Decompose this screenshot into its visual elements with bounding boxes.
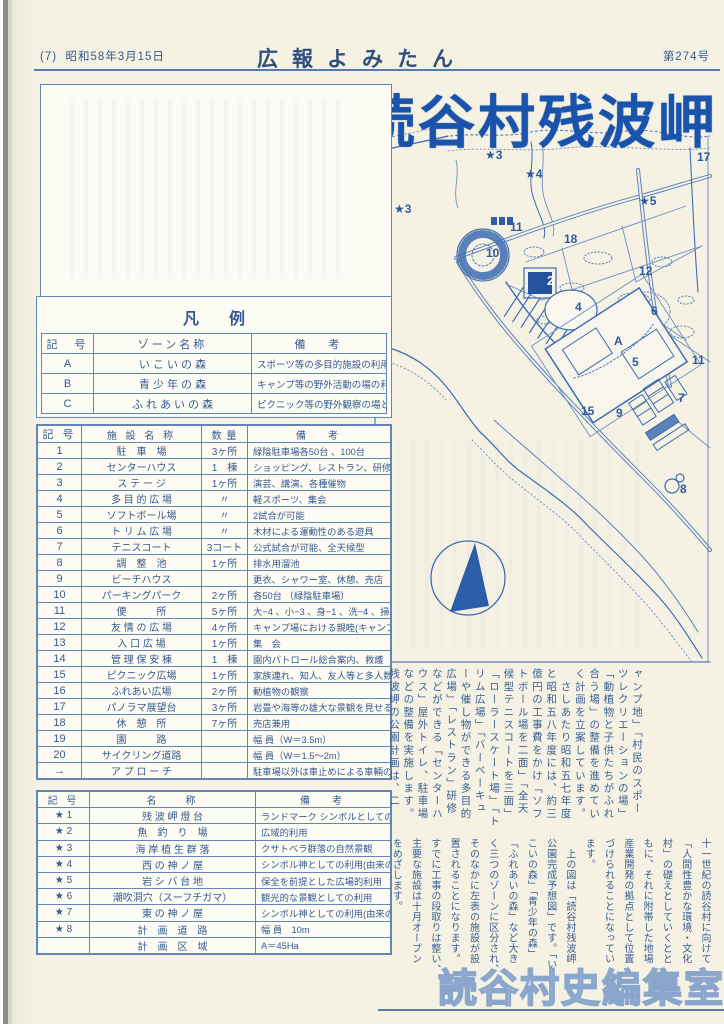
landmark-sign: ★ 3 xyxy=(38,840,90,856)
landmark-note: シンボル神としての利用(由来の銘記) xyxy=(256,856,391,872)
facility-qty xyxy=(202,747,248,763)
facility-row: 10 パーキングパーク 2ヶ所 各50台 （緑陰駐車場） xyxy=(38,587,391,603)
facility-row: 2 センターハウス 1 棟 ショッピング、レストラン、研修等 xyxy=(38,459,391,475)
page-number-and-date: (7) 昭和58年3月15日 xyxy=(40,48,165,64)
zone-row: B 青 少 年 の 森 キャンプ等の野外活動の場の利用 xyxy=(42,374,387,394)
landmark-note: A＝45Ha xyxy=(256,937,391,953)
zone-col-sign: 記 号 xyxy=(42,334,94,354)
facility-row: 11 便 所 5ヶ所 大−4 、小−3 、身−1 、洗−4 、掃−1 xyxy=(38,603,391,619)
facility-note: 排水用溜池 xyxy=(248,555,391,571)
facility-sign: 10 xyxy=(38,587,82,603)
map-label: 6 xyxy=(651,304,658,318)
facility-name: ビーチハウス xyxy=(82,571,202,587)
landmark-row: ★ 8 計 画 道 路 幅 員 10m xyxy=(38,921,391,937)
landmark-row: ★ 1 残 波 岬 燈 台 ランドマーク シンボルとしての利用 xyxy=(38,808,391,824)
facility-row: 18 休 憩 所 7ヶ所 売店兼用 xyxy=(38,715,391,731)
facility-col-sign: 記 号 xyxy=(38,426,82,443)
facility-name: ふれあい広場 xyxy=(82,683,202,699)
zone-sign: B xyxy=(42,374,94,394)
facility-note: 2試合が可能 xyxy=(248,507,391,523)
facility-qty: 2ヶ所 xyxy=(202,683,248,699)
zone-row: C ふ れ あ い の 森 ピクニック等の野外観察の場としての利用 xyxy=(42,394,387,414)
zone-note: キャンプ等の野外活動の場の利用 xyxy=(252,374,387,394)
facility-note: 軽スポーツ、集会 xyxy=(248,491,391,507)
facility-name: パノラマ展望台 xyxy=(82,699,202,715)
map-label: 12 xyxy=(639,264,652,278)
facility-name: センターハウス xyxy=(82,459,202,475)
facility-name: サイクリング道路 xyxy=(82,747,202,763)
landmark-table: 記 号 名 称 備 考 ★ 1 残 波 岬 燈 台 ランドマーク シンボルとして… xyxy=(37,791,391,954)
facility-sign: 11 xyxy=(38,603,82,619)
facility-sign: 1 xyxy=(38,443,82,459)
facility-sign: 9 xyxy=(38,571,82,587)
map-label: ★3 xyxy=(394,202,411,216)
facility-qty: 1 棟 xyxy=(202,459,248,475)
facility-sign: 7 xyxy=(38,539,82,555)
facility-col-qty: 数 量 xyxy=(202,426,248,443)
facility-sign: 6 xyxy=(38,523,82,539)
facility-row: 12 友 情 の 広 場 4ヶ所 キャンプ場における親睦(キャンプファイア等) xyxy=(38,619,391,635)
map-label: ★3 xyxy=(485,148,502,162)
facility-qty: 1ヶ所 xyxy=(202,555,248,571)
landmark-note: 広域的利用 xyxy=(256,824,391,840)
landmark-row: ★ 4 西 の 神 ノ 屋 シンボル神としての利用(由来の銘記) xyxy=(38,856,391,872)
zone-sign: A xyxy=(42,354,94,374)
facility-name: テニスコート xyxy=(82,539,202,555)
zone-col-name: ゾーン名称 xyxy=(94,334,252,354)
facility-row: 14 管 理 保 安 棟 1 棟 園内パトロール総合案内、救護 xyxy=(38,651,391,667)
landmark-sign: ★ 2 xyxy=(38,824,90,840)
facility-row: 13 入 口 広 場 1ヶ所 集 会 xyxy=(38,635,391,651)
facility-panel: 記 号 施 設 名 称 数 量 備 考 1 駐 車 場 3ヶ所 緑陰駐車場各50… xyxy=(36,424,392,780)
facility-row: 8 調 整 池 1ヶ所 排水用溜池 xyxy=(38,555,391,571)
facility-name: 管 理 保 安 棟 xyxy=(82,651,202,667)
facility-qty: 3コート xyxy=(202,539,248,555)
zone-row: A い こ い の 森 スポーツ等の多目的施設の利用 xyxy=(42,354,387,374)
editors-office-stamp: 読谷村史編集室 xyxy=(438,958,724,1014)
facility-qty xyxy=(202,763,248,779)
facility-row: → ア プ ロ ー チ 駐車場以外は車止めによる車輛の締出し xyxy=(38,763,391,779)
facility-qty: 1ヶ所 xyxy=(202,635,248,651)
facility-row: 15 ピクニック広場 1ヶ所 家族連れ、知人、友人等と多人数の利用 xyxy=(38,667,391,683)
facility-note: 駐車場以外は車止めによる車輛の締出し xyxy=(248,763,391,779)
landmark-sign: ★ 6 xyxy=(38,889,90,905)
map-label: 8 xyxy=(680,482,687,496)
bleedthrough-ghost xyxy=(71,99,351,279)
zone-name: 青 少 年 の 森 xyxy=(94,374,252,394)
facility-name: 園 路 xyxy=(82,731,202,747)
facility-note: 演芸、講演、各種催物 xyxy=(248,475,391,491)
facility-row: 4 多 目 的 広 場 〃 軽スポーツ、集会 xyxy=(38,491,391,507)
facility-note: 幅 員（W＝3.5m） xyxy=(248,731,391,747)
facility-row: 9 ビーチハウス 更衣、シャワー室、休憩、売店 xyxy=(38,571,391,587)
facility-note: 動植物の観察 xyxy=(248,683,391,699)
facility-sign: 18 xyxy=(38,715,82,731)
map-label: 7 xyxy=(678,391,685,405)
landmark-sign: ★ 4 xyxy=(38,856,90,872)
facility-qty xyxy=(202,571,248,587)
issue-number: 第274号 xyxy=(663,48,710,64)
facility-name: ソフトボール場 xyxy=(82,507,202,523)
facility-qty: 1ヶ所 xyxy=(202,667,248,683)
facility-qty: 3ヶ所 xyxy=(202,443,248,459)
landmark-row: 計 画 区 域 A＝45Ha xyxy=(38,937,391,953)
zone-col-note: 備 考 xyxy=(252,334,387,354)
landmark-name: 魚 釣 り 場 xyxy=(90,824,256,840)
facility-sign: 19 xyxy=(38,731,82,747)
landmark-row: ★ 2 魚 釣 り 場 広域的利用 xyxy=(38,824,391,840)
legend-title: 凡例 xyxy=(41,299,387,333)
issue-date: 昭和58年3月15日 xyxy=(65,51,164,63)
article-lower-tier: 十一世紀の読谷村に向けて 「人間性豊かな環境・文化 村」の礎えとしていくとと も… xyxy=(386,838,714,970)
landmark-sign: ★ 8 xyxy=(38,921,90,937)
facility-note: 緑陰駐車場各50台 、100台 xyxy=(248,443,391,459)
facility-name: 調 整 池 xyxy=(82,555,202,571)
facility-qty: 〃 xyxy=(202,523,248,539)
zone-sign: C xyxy=(42,394,94,414)
landmark-note: クサトベラ群落の自然景観 xyxy=(256,840,391,856)
map-label: 9 xyxy=(616,406,623,420)
facility-qty: 1 棟 xyxy=(202,651,248,667)
facility-note: ショッピング、レストラン、研修等 xyxy=(248,459,391,475)
facility-note: 大−4 、小−3 、身−1 、洗−4 、掃−1 xyxy=(248,603,391,619)
facility-name: 多 目 的 広 場 xyxy=(82,491,202,507)
facility-sign: 15 xyxy=(38,667,82,683)
facility-qty: 1ヶ所 xyxy=(202,475,248,491)
legend-panel: 凡例 記 号 ゾーン名称 備 考 A い こ い の 森 スポーツ等の多目的施設… xyxy=(36,296,392,418)
landmark-sign: ★ 1 xyxy=(38,808,90,824)
facility-sign: 5 xyxy=(38,507,82,523)
bleedthrough-ghost-map xyxy=(398,440,648,650)
facility-row: 1 駐 車 場 3ヶ所 緑陰駐車場各50台 、100台 xyxy=(38,443,391,459)
facility-sign: 3 xyxy=(38,475,82,491)
facility-col-note: 備 考 xyxy=(248,426,391,443)
page-title: 読谷村残波岬 xyxy=(358,77,718,159)
landmark-sign: ★ 7 xyxy=(38,905,90,921)
facility-sign: 8 xyxy=(38,555,82,571)
facility-qty: 7ヶ所 xyxy=(202,715,248,731)
landmark-sign xyxy=(38,937,90,953)
map-label: 18 xyxy=(564,232,577,246)
facility-qty: 5ヶ所 xyxy=(202,603,248,619)
facility-row: 6 ト リ ム 広 場 〃 木材による運動性のある遊具 xyxy=(38,523,391,539)
facility-sign: 13 xyxy=(38,635,82,651)
landmark-name: 潮吹洞穴（スーフチガマ） xyxy=(90,889,256,905)
facility-qty xyxy=(202,731,248,747)
map-label: 11 xyxy=(692,353,705,367)
facility-note: 木材による運動性のある遊具 xyxy=(248,523,391,539)
zone-name: ふ れ あ い の 森 xyxy=(94,394,252,414)
map-label: 5 xyxy=(632,355,639,369)
facility-sign: 16 xyxy=(38,683,82,699)
map-label: 11 xyxy=(510,220,523,234)
landmark-name: 岩 シ バ 台 地 xyxy=(90,872,256,888)
facility-sign: 20 xyxy=(38,747,82,763)
zone-table: 記 号 ゾーン名称 備 考 A い こ い の 森 スポーツ等の多目的施設の利用… xyxy=(41,333,387,414)
facility-name: ア プ ロ ー チ xyxy=(82,763,202,779)
facility-sign: 2 xyxy=(38,459,82,475)
facility-name: 休 憩 所 xyxy=(82,715,202,731)
landmark-panel: 記 号 名 称 備 考 ★ 1 残 波 岬 燈 台 ランドマーク シンボルとして… xyxy=(36,790,392,955)
facility-note: 家族連れ、知人、友人等と多人数の利用 xyxy=(248,667,391,683)
map-label: ★4 xyxy=(525,167,542,181)
landmark-col-name: 名 称 xyxy=(90,792,256,808)
landmark-col-note: 備 考 xyxy=(256,792,391,808)
facility-row: 5 ソフトボール場 〃 2試合が可能 xyxy=(38,507,391,523)
facility-note: 岩畳や海等の雄大な景観を見せる xyxy=(248,699,391,715)
landmark-row: ★ 6 潮吹洞穴（スーフチガマ） 観光的な景観としての利用 xyxy=(38,889,391,905)
landmark-row: ★ 3 海 岸 植 生 群 落 クサトベラ群落の自然景観 xyxy=(38,840,391,856)
landmark-name: 西 の 神 ノ 屋 xyxy=(90,856,256,872)
map-label: 15 xyxy=(581,404,594,418)
facility-sign: 4 xyxy=(38,491,82,507)
facility-note: 更衣、シャワー室、休憩、売店 xyxy=(248,571,391,587)
facility-name: ス テ ー ジ xyxy=(82,475,202,491)
map-label: 4 xyxy=(575,300,582,314)
map-label: ★5 xyxy=(639,194,656,208)
facility-row: 3 ス テ ー ジ 1ヶ所 演芸、講演、各種催物 xyxy=(38,475,391,491)
facility-sign: → xyxy=(38,763,82,779)
facility-row: 19 園 路 幅 員（W＝3.5m） xyxy=(38,731,391,747)
landmark-note: 幅 員 10m xyxy=(256,921,391,937)
facility-name: 友 情 の 広 場 xyxy=(82,619,202,635)
landmark-name: 残 波 岬 燈 台 xyxy=(90,808,256,824)
facility-note: 各50台 （緑陰駐車場） xyxy=(248,587,391,603)
facility-row: 16 ふれあい広場 2ヶ所 動植物の観察 xyxy=(38,683,391,699)
zone-name: い こ い の 森 xyxy=(94,354,252,374)
facility-name: パーキングパーク xyxy=(82,587,202,603)
landmark-name: 東 の 神 ノ 屋 xyxy=(90,905,256,921)
facility-qty: 〃 xyxy=(202,491,248,507)
facility-name: 入 口 広 場 xyxy=(82,635,202,651)
article-upper-tier: ャンプ地」「村民のスポー ツレクリエーションの場」 「動植物と子供たちがふれ 合… xyxy=(386,668,644,835)
landmark-sign: ★ 5 xyxy=(38,872,90,888)
map-label: 2 xyxy=(547,273,554,288)
facility-note: 公式試合が可能、全天候型 xyxy=(248,539,391,555)
landmark-note: 観光的な景観としての利用 xyxy=(256,889,391,905)
facility-note: 幅 員（W＝1.5〜2m） xyxy=(248,747,391,763)
map-label: A xyxy=(614,334,623,348)
facility-col-name: 施 設 名 称 xyxy=(82,426,202,443)
facility-row: 17 パノラマ展望台 3ヶ所 岩畳や海等の雄大な景観を見せる xyxy=(38,699,391,715)
map-label: 10 xyxy=(486,246,499,260)
facility-sign: 12 xyxy=(38,619,82,635)
map-label: 17 xyxy=(697,150,710,164)
facility-qty: 〃 xyxy=(202,507,248,523)
landmark-note: ランドマーク シンボルとしての利用 xyxy=(256,808,391,824)
newspaper-page: (7) 昭和58年3月15日 広報よみたん 第274号 xyxy=(0,0,724,1024)
facility-name: ト リ ム 広 場 xyxy=(82,523,202,539)
facility-sign: 14 xyxy=(38,651,82,667)
landmark-note: シンボル神としての利用(由来の銘記) xyxy=(256,905,391,921)
facility-row: 20 サイクリング道路 幅 員（W＝1.5〜2m） xyxy=(38,747,391,763)
landmark-row: ★ 5 岩 シ バ 台 地 保全を前提とした広場的利用 xyxy=(38,872,391,888)
landmark-name: 計 画 道 路 xyxy=(90,921,256,937)
facility-name: 便 所 xyxy=(82,603,202,619)
facility-row: 7 テニスコート 3コート 公式試合が可能、全天候型 xyxy=(38,539,391,555)
landmark-row: ★ 7 東 の 神 ノ 屋 シンボル神としての利用(由来の銘記) xyxy=(38,905,391,921)
blank-panel xyxy=(40,84,392,298)
zone-note: ピクニック等の野外観察の場としての利用 xyxy=(252,394,387,414)
facility-note: 売店兼用 xyxy=(248,715,391,731)
edition-note: (7) xyxy=(40,51,57,63)
facility-sign: 17 xyxy=(38,699,82,715)
footer-rule xyxy=(378,1009,724,1011)
facility-note: 集 会 xyxy=(248,635,391,651)
landmark-name: 計 画 区 域 xyxy=(90,937,256,953)
landmark-col-sign: 記 号 xyxy=(38,792,90,808)
zone-note: スポーツ等の多目的施設の利用 xyxy=(252,354,387,374)
facility-qty: 2ヶ所 xyxy=(202,587,248,603)
facility-note: 園内パトロール総合案内、救護 xyxy=(248,651,391,667)
landmark-note: 保全を前提とした広場的利用 xyxy=(256,872,391,888)
landmark-name: 海 岸 植 生 群 落 xyxy=(90,840,256,856)
facility-qty: 3ヶ所 xyxy=(202,699,248,715)
facility-name: 駐 車 場 xyxy=(82,443,202,459)
facility-name: ピクニック広場 xyxy=(82,667,202,683)
facility-qty: 4ヶ所 xyxy=(202,619,248,635)
facility-note: キャンプ場における親睦(キャンプファイア等) xyxy=(248,619,391,635)
facility-table: 記 号 施 設 名 称 数 量 備 考 1 駐 車 場 3ヶ所 緑陰駐車場各50… xyxy=(37,425,391,779)
